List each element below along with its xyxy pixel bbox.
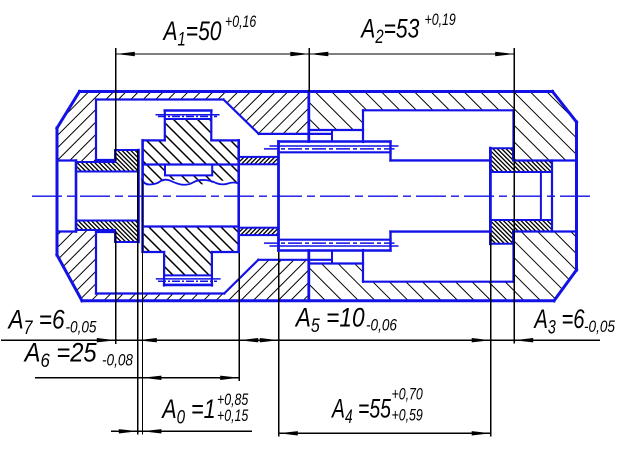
svg-text:-0,05: -0,05 <box>66 318 97 337</box>
svg-text:A1=50: A1=50 <box>162 17 222 50</box>
svg-text:+0,59: +0,59 <box>392 407 423 425</box>
svg-text:-0,06: -0,06 <box>366 316 397 335</box>
svg-text:A0 =1: A0 =1 <box>160 395 215 428</box>
svg-text:A2=53: A2=53 <box>360 14 420 47</box>
svg-text:A3 =6: A3 =6 <box>533 304 585 338</box>
svg-text:A6 =25: A6 =25 <box>23 338 98 371</box>
svg-text:-0,08: -0,08 <box>102 351 133 370</box>
svg-text:+0,19: +0,19 <box>425 11 456 29</box>
svg-text:+0,70: +0,70 <box>392 386 423 404</box>
svg-text:-0,05: -0,05 <box>584 318 615 337</box>
svg-text:+0,15: +0,15 <box>217 407 249 425</box>
svg-text:A7 =6: A7 =6 <box>7 305 65 339</box>
svg-text:+0,16: +0,16 <box>225 13 257 31</box>
svg-text:A4 =55: A4 =55 <box>330 393 391 427</box>
svg-text:A5 =10: A5 =10 <box>294 303 365 337</box>
